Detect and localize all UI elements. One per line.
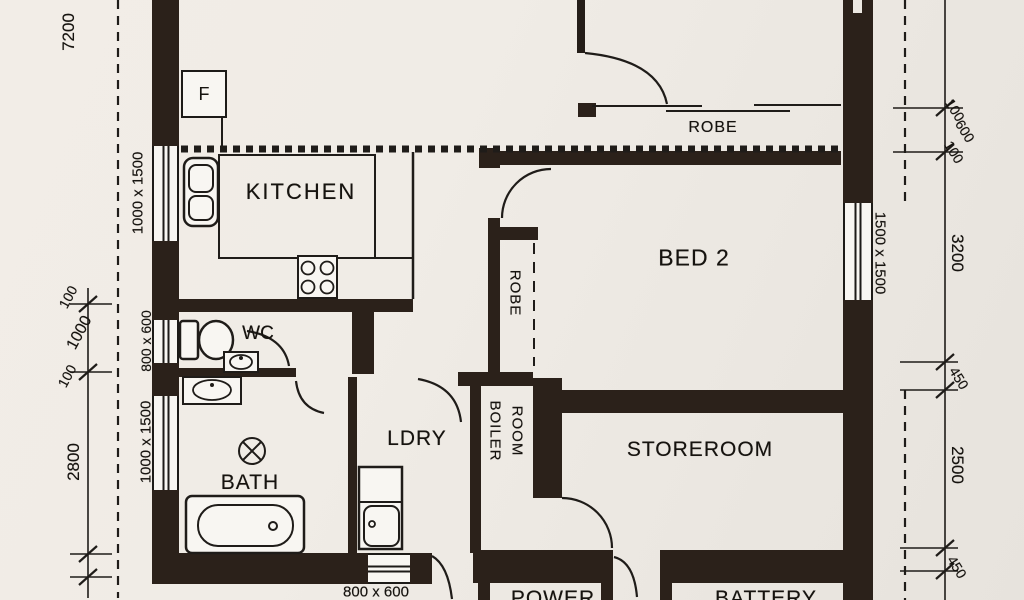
dim-label-7200: 7200 (59, 13, 79, 51)
room-label-robe-bed2: ROBE (507, 270, 524, 317)
room-label-storeroom: STOREROOM (627, 438, 773, 462)
laundry-door-arc (418, 379, 461, 422)
bed2-door-arc (502, 169, 551, 218)
room-label-power: POWER (511, 587, 595, 600)
room-label-boiler-line1: BOILER (487, 400, 504, 461)
room-label-kitchen: KITCHEN (246, 179, 357, 205)
wc-basin (224, 352, 258, 372)
window-label-wc: 800 x 600 (138, 310, 154, 372)
room-label-laundry: LDRY (387, 427, 447, 451)
room-label-boiler-line2: ROOM (509, 406, 526, 457)
room-label-battery: BATTERY (715, 587, 817, 600)
window-label-laundry-south: 800 x 600 (343, 584, 409, 600)
entry-door-arc (585, 53, 667, 104)
dim-label-2500: 2500 (947, 446, 967, 484)
robe-top-sliding-doors (592, 105, 841, 111)
bathtub (186, 496, 304, 553)
room-label-bed2: BED 2 (658, 245, 729, 272)
power-room-door-arc (614, 557, 637, 597)
window-label-bed2: 1500 x 1500 (872, 212, 889, 295)
bath-basin (183, 377, 241, 404)
room-label-wc: WC (242, 323, 274, 345)
cooktop (298, 256, 337, 298)
laundry-trough (359, 467, 402, 549)
door-arcs (247, 53, 667, 599)
window-label-kitchen: 1000 x 1500 (130, 152, 147, 235)
room-label-robe-top: ROBE (688, 119, 737, 137)
south-exit-door-arc (432, 556, 452, 599)
kitchen-bench-outline (219, 155, 375, 258)
room-label-bath: BATH (221, 471, 279, 495)
kitchen-sink (184, 158, 218, 226)
dim-label-2800: 2800 (64, 443, 84, 481)
window-label-bath: 1000 x 1500 (138, 401, 155, 484)
right-dim-ticks (893, 108, 963, 571)
bath-door-arc (296, 381, 324, 413)
dim-label-3200: 3200 (947, 234, 967, 272)
storeroom-hall-door-arc (562, 498, 612, 548)
floor-plan-sheet: F (0, 0, 1024, 600)
floor-waste-symbol (239, 438, 265, 464)
